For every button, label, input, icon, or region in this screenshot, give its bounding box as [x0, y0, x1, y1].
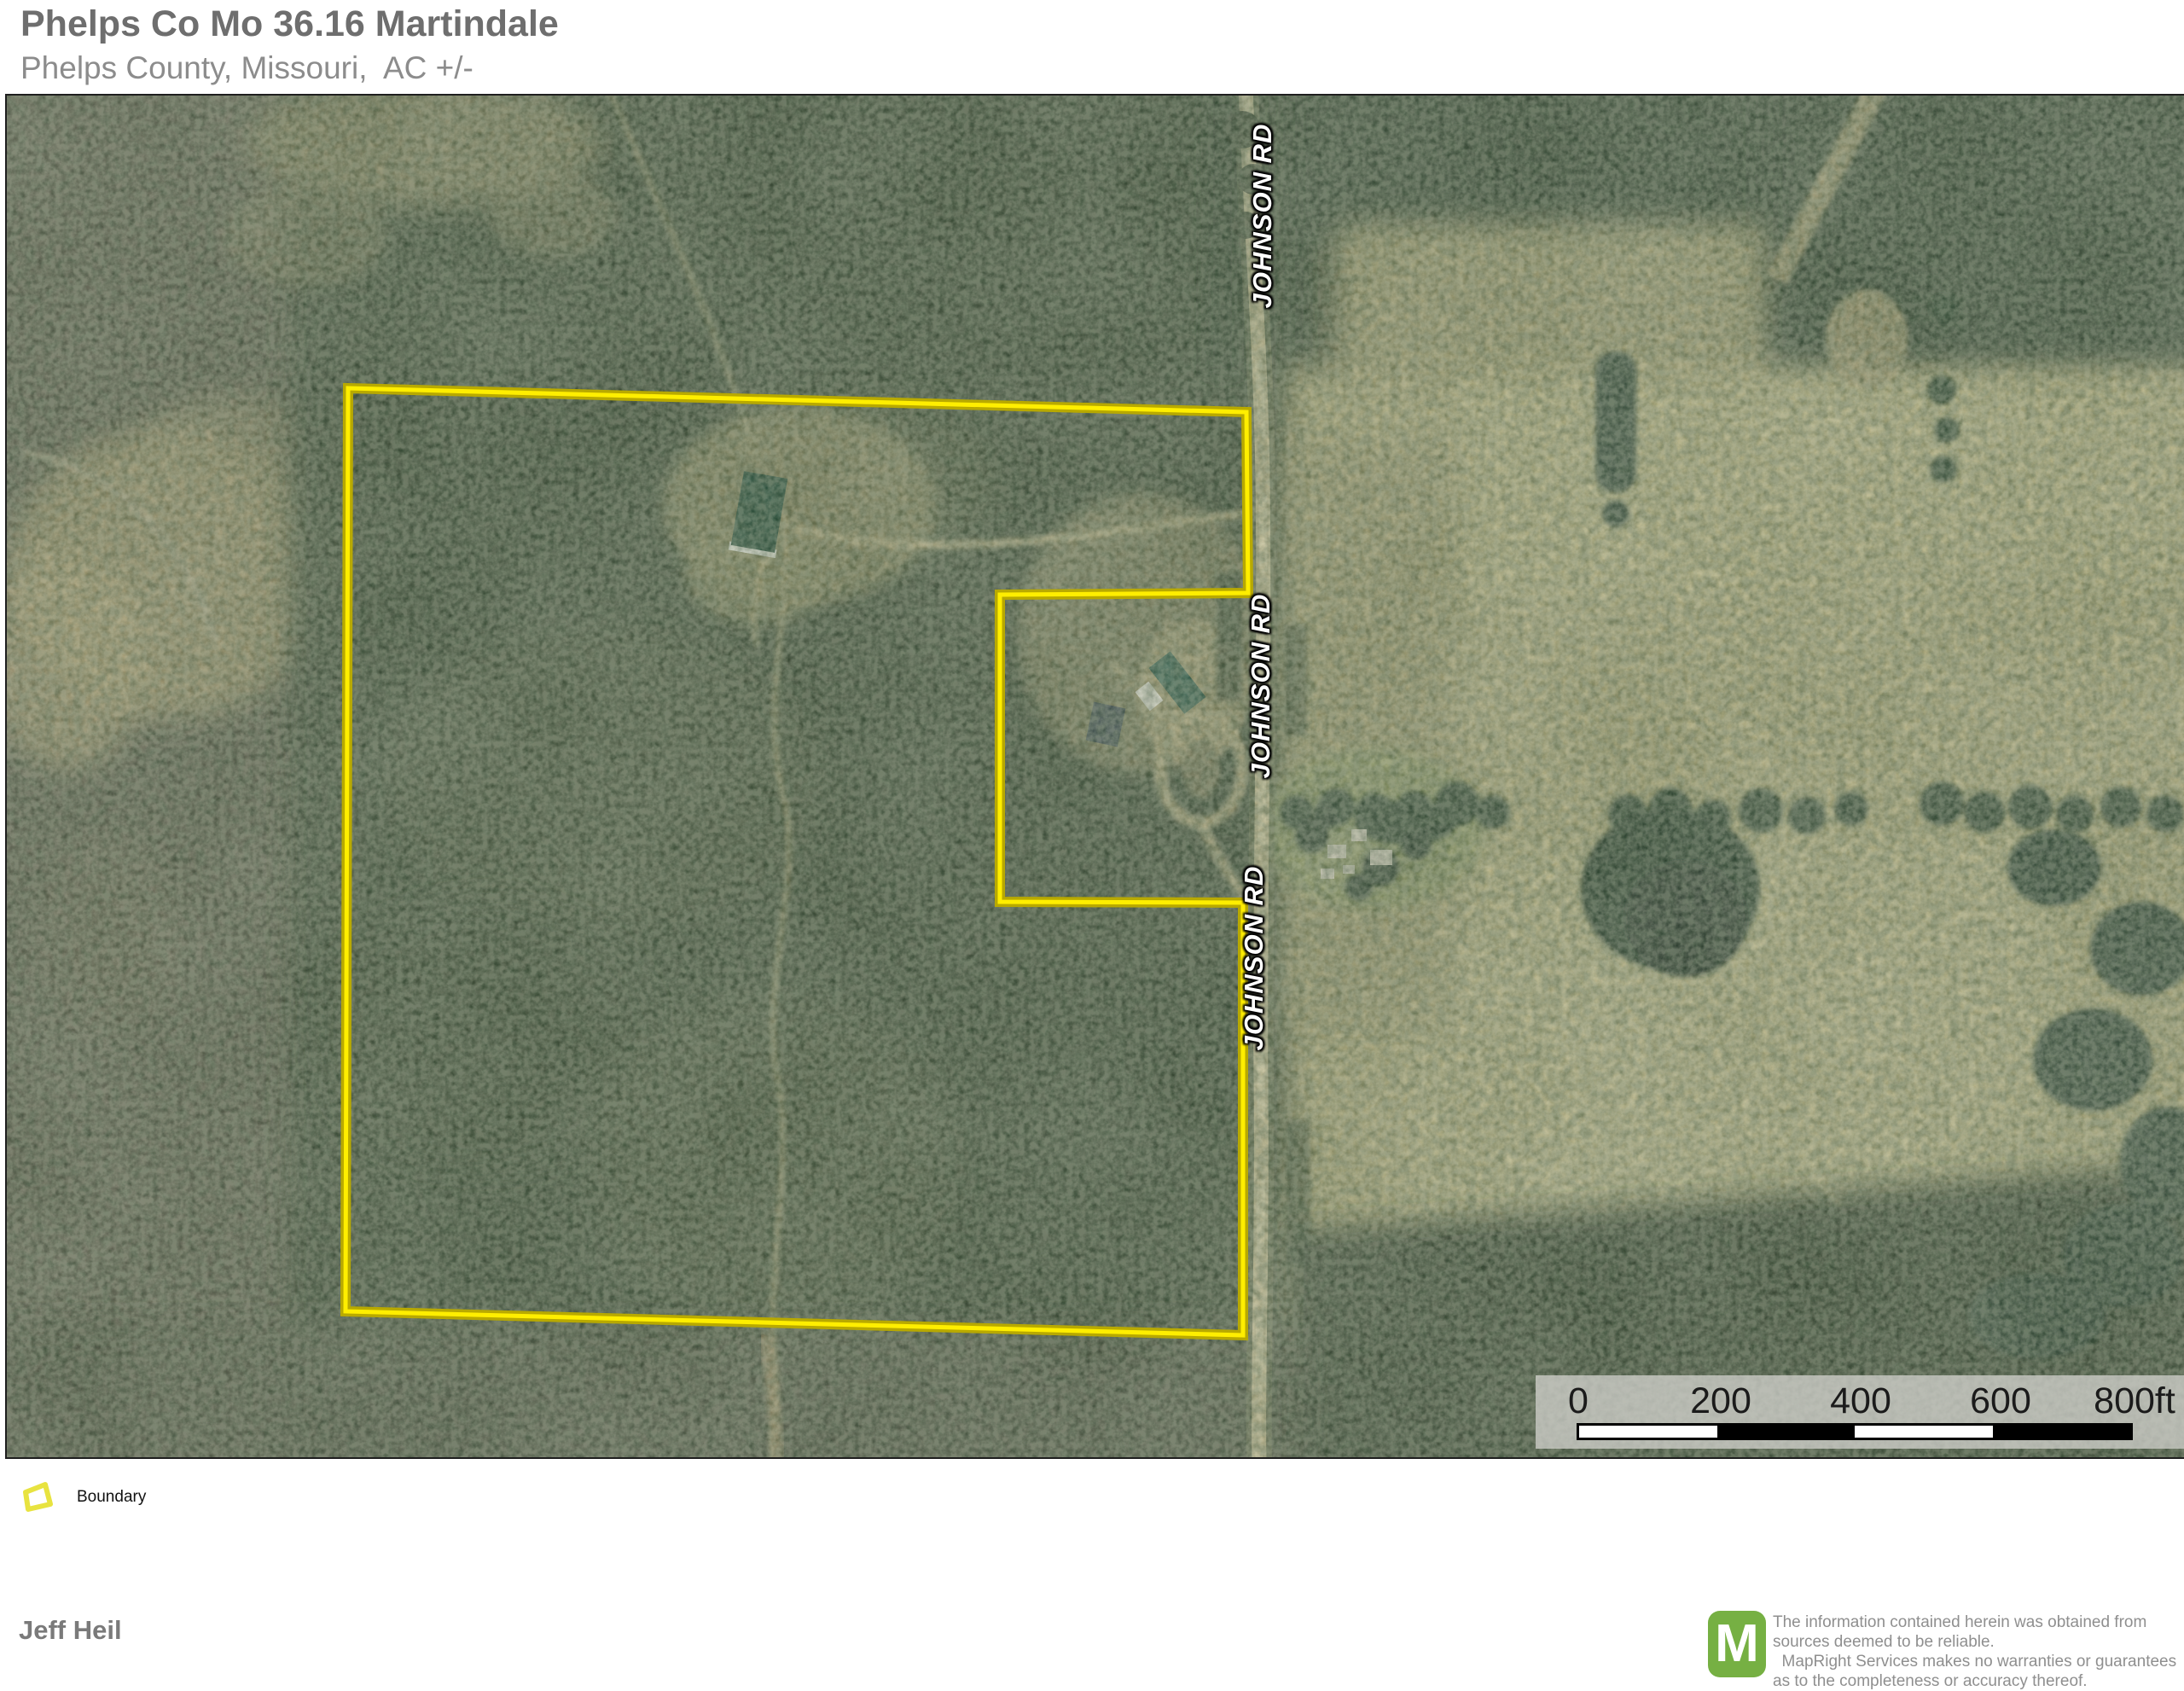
- scale-tick-800ft: 800ft: [2094, 1380, 2175, 1422]
- page-subtitle: Phelps County, Missouri, AC +/-: [20, 50, 559, 86]
- scale-tick-400: 400: [1830, 1380, 1891, 1422]
- disclaimer-text: The information contained herein was obt…: [1773, 1611, 2176, 1691]
- road-label-johnson-rd-middle: JOHNSON RD: [1246, 594, 1276, 779]
- boundary-legend-icon: [17, 1479, 53, 1515]
- texture-overlay: [7, 96, 2184, 1457]
- legend: Boundary: [17, 1479, 146, 1515]
- scale-segment: [1579, 1426, 1717, 1438]
- scale-bar-segments: [1577, 1423, 2133, 1440]
- disclaimer-line: The information contained herein was obt…: [1773, 1613, 2176, 1632]
- scale-tick-600: 600: [1970, 1380, 2031, 1422]
- scale-tick-200: 200: [1690, 1380, 1751, 1422]
- scale-bar: 0 200 400 600 800ft: [1536, 1375, 2184, 1449]
- scale-segment: [1855, 1426, 1993, 1438]
- road-label-johnson-rd-south: JOHNSON RD: [1239, 866, 1269, 1051]
- page-title: Phelps Co Mo 36.16 Martindale: [20, 3, 559, 45]
- header: Phelps Co Mo 36.16 Martindale Phelps Cou…: [20, 3, 559, 86]
- disclaimer-line: MapRight Services makes no warranties or…: [1773, 1652, 2176, 1671]
- scale-tick-0: 0: [1568, 1380, 1589, 1422]
- mapright-credit: M The information contained herein was o…: [1708, 1611, 2176, 1691]
- mapright-logo-letter: M: [1715, 1618, 1759, 1671]
- map-canvas: JOHNSON RD JOHNSON RD JOHNSON RD 0 200 4…: [7, 96, 2184, 1457]
- mapright-logo-icon: M: [1708, 1611, 1766, 1677]
- scale-segment: [1993, 1426, 2131, 1438]
- legend-item-boundary-label: Boundary: [77, 1488, 146, 1507]
- attribution-name: Jeff Heil: [19, 1615, 122, 1646]
- disclaimer-line: sources deemed to be reliable.: [1773, 1632, 2176, 1652]
- road-label-johnson-rd-north: JOHNSON RD: [1247, 124, 1278, 309]
- satellite-imagery: [7, 96, 2184, 1457]
- scale-segment: [1717, 1426, 1856, 1438]
